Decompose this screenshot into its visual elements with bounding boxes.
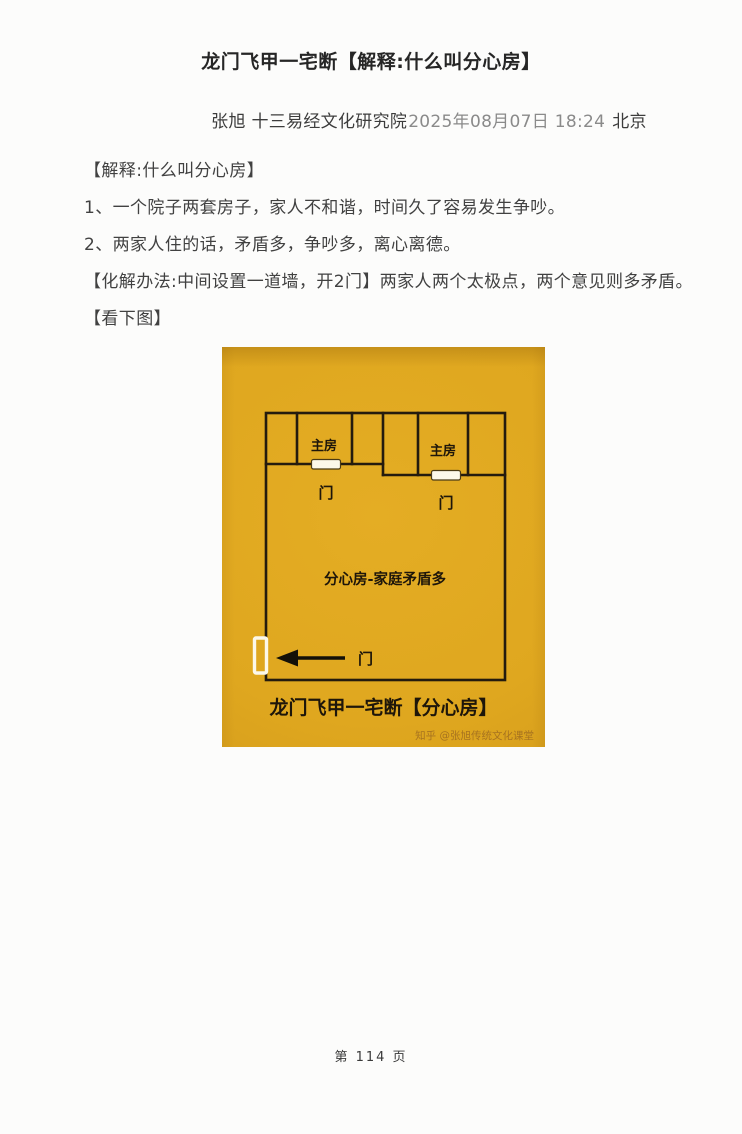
body-line-explanation-header: 【解释:什么叫分心房】 <box>84 153 716 190</box>
interior-label: 分心房-家庭矛盾多 <box>324 570 447 588</box>
byline-author-org: 张旭 十三易经文化研究院 <box>211 112 407 132</box>
body-text: 【解释:什么叫分心房】 1、一个院子两套房子，家人不和谐，时间久了容易发生争吵。… <box>0 153 742 338</box>
entrance-arrow-head-icon <box>276 650 298 667</box>
body-line-see-figure: 【看下图】 <box>84 301 716 338</box>
door-mark-left-main-room <box>312 460 341 470</box>
page-title: 龙门飞甲一宅断【解释:什么叫分心房】 <box>0 0 742 76</box>
byline: 张旭 十三易经文化研究院2025年08月07日 18:24北京 <box>0 107 742 132</box>
byline-datetime: 2025年08月07日 18:24 <box>408 112 605 132</box>
byline-location: 北京 <box>612 112 647 132</box>
floor-plan: 主房 主房 门 门 分心房-家庭矛盾多 门 龙门飞甲一宅断【分心房】 知乎 @张… <box>222 347 545 747</box>
door-mark-right-main-room <box>432 471 461 481</box>
diagram-caption: 龙门飞甲一宅断【分心房】 <box>269 696 497 719</box>
page-footer: 第 114 页 <box>0 1046 742 1065</box>
room-label-left: 主房 <box>311 438 337 454</box>
door-label-right: 门 <box>438 494 453 512</box>
diagram-card: 主房 主房 门 门 分心房-家庭矛盾多 门 龙门飞甲一宅断【分心房】 知乎 @张… <box>222 347 545 747</box>
watermark: 知乎 @张旭传统文化课堂 <box>415 729 534 742</box>
door-label-entrance: 门 <box>358 650 373 668</box>
door-mark-entrance <box>255 638 267 673</box>
room-label-right: 主房 <box>430 443 456 459</box>
document-page: 龙门飞甲一宅断【解释:什么叫分心房】 张旭 十三易经文化研究院2025年08月0… <box>0 0 742 1134</box>
body-line-point-1: 1、一个院子两套房子，家人不和谐，时间久了容易发生争吵。 <box>84 190 716 227</box>
body-line-point-2: 2、两家人住的话，矛盾多，争吵多，离心离德。 <box>84 227 716 264</box>
body-line-remedy: 【化解办法:中间设置一道墙，开2门】两家人两个太极点，两个意见则多矛盾。 <box>84 264 716 301</box>
door-label-left: 门 <box>318 484 333 502</box>
